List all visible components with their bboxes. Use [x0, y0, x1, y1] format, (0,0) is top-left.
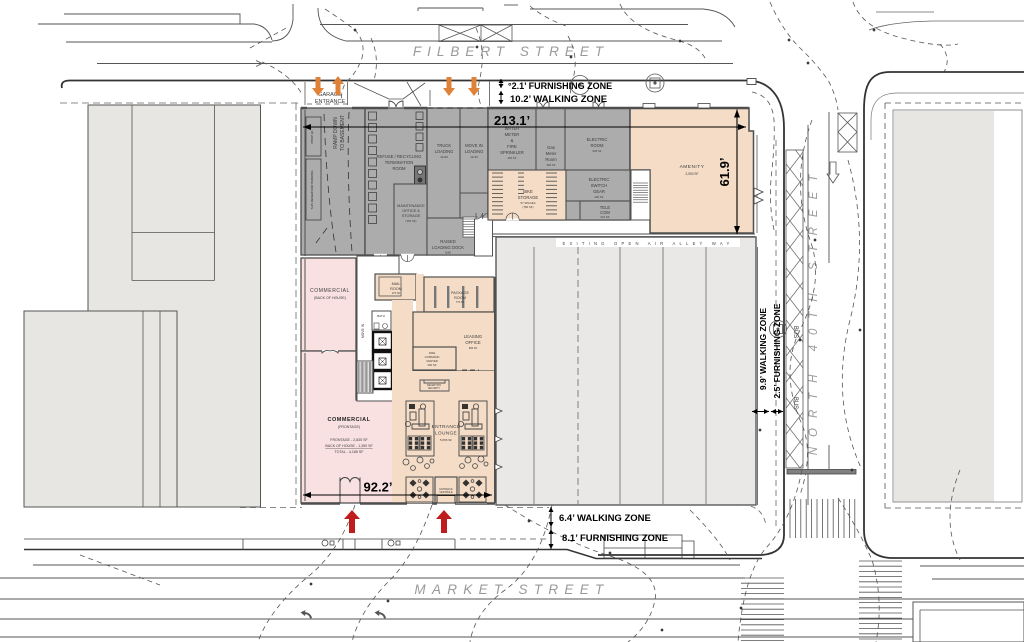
- svg-text:6.4’ WALKING ZONE: 6.4’ WALKING ZONE: [559, 513, 651, 524]
- svg-text:2,900 SF: 2,900 SF: [686, 172, 699, 176]
- svg-text:360 SF: 360 SF: [546, 163, 555, 167]
- svg-text:COMMERCIAL: COMMERCIAL: [310, 288, 350, 294]
- svg-text:OFFICE: OFFICE: [465, 340, 481, 345]
- svg-text:Meter: Meter: [546, 151, 557, 156]
- svg-text:BUS: BUS: [792, 397, 798, 409]
- svg-text:FRONTAGE - 2,835 SF: FRONTAGE - 2,835 SF: [330, 438, 368, 442]
- svg-text:12x40: 12x40: [470, 155, 478, 159]
- svg-text:770 SF: 770 SF: [456, 300, 465, 304]
- svg-text:RAISED: RAISED: [440, 239, 456, 244]
- svg-text:MAIL: MAIL: [392, 282, 401, 286]
- svg-text:FILBERT STREET: FILBERT STREET: [413, 44, 609, 59]
- svg-text:ENTRANCE: ENTRANCE: [315, 99, 346, 105]
- svg-text:(BACK OF HOUSE): (BACK OF HOUSE): [314, 296, 346, 300]
- svg-text:200 SF: 200 SF: [427, 363, 436, 367]
- svg-text:COMMERCIAL: COMMERCIAL: [328, 417, 371, 423]
- svg-text:MOVE IN: MOVE IN: [465, 143, 483, 148]
- svg-text:(300 SF): (300 SF): [406, 219, 417, 223]
- svg-text:BIKE: BIKE: [523, 189, 533, 194]
- svg-text:MAINTENANCE: MAINTENANCE: [397, 204, 425, 208]
- svg-text:ELECTRIC: ELECTRIC: [589, 177, 610, 182]
- svg-text:VESTIBULE: VESTIBULE: [439, 491, 453, 494]
- svg-text:AMENITY: AMENITY: [680, 164, 705, 170]
- svg-text:TERMINATION: TERMINATION: [385, 160, 414, 165]
- svg-text:92.2’: 92.2’: [364, 480, 393, 495]
- svg-text:ROOM: ROOM: [390, 287, 402, 291]
- svg-text:5,056 SF: 5,056 SF: [440, 438, 452, 442]
- svg-text:945 SF: 945 SF: [592, 149, 601, 153]
- svg-text:400 SF: 400 SF: [594, 195, 603, 199]
- svg-text:213.1’: 213.1’: [494, 113, 530, 128]
- svg-text:EXITING OPEN AIR ALLEY WAY: EXITING OPEN AIR ALLEY WAY: [562, 241, 733, 246]
- svg-text:LEASING: LEASING: [464, 334, 482, 339]
- svg-text:FIRE: FIRE: [507, 144, 517, 149]
- svg-text:9x60: 9x60: [445, 251, 452, 255]
- svg-text:10.2’ WALKING ZONE: 10.2’ WALKING ZONE: [510, 94, 607, 105]
- svg-text:RAMP DOWN: RAMP DOWN: [333, 117, 339, 149]
- svg-text:LOUNGE: LOUNGE: [435, 431, 457, 437]
- svg-text:ROOM: ROOM: [590, 143, 604, 148]
- svg-text:9.9’ WALKING ZONE: 9.9’ WALKING ZONE: [758, 308, 768, 391]
- svg-text:SWITCH: SWITCH: [591, 183, 608, 188]
- svg-text:680 SF: 680 SF: [469, 346, 478, 350]
- svg-text:(FRONTAGE): (FRONTAGE): [338, 425, 360, 429]
- svg-text:REFUSE / RECYCLING: REFUSE / RECYCLING: [377, 154, 422, 159]
- svg-text:PROP (2): PROP (2): [310, 131, 314, 144]
- svg-text:ELECTRIC: ELECTRIC: [587, 137, 608, 142]
- svg-text:METER: METER: [505, 132, 520, 137]
- svg-text:SECURITY: SECURITY: [428, 387, 440, 390]
- svg-text:ENTRANCE: ENTRANCE: [432, 424, 461, 430]
- svg-text:OFFICE &: OFFICE &: [402, 209, 420, 213]
- svg-text:Gas: Gas: [547, 145, 555, 150]
- svg-text:NORTH 40TH STREET: NORTH 40TH STREET: [808, 165, 820, 456]
- svg-text:370 SF: 370 SF: [392, 291, 401, 295]
- svg-text:STORAGE: STORAGE: [518, 195, 539, 200]
- svg-text:210 SF: 210 SF: [600, 215, 609, 219]
- svg-text:PACKAGE: PACKAGE: [451, 291, 470, 295]
- svg-text:450 SF: 450 SF: [507, 156, 516, 160]
- svg-text:LOADING DOCK: LOADING DOCK: [432, 245, 464, 250]
- svg-text:STORAGE: STORAGE: [402, 214, 421, 218]
- svg-text:°2.1’ FURNISHING ZONE: °2.1’ FURNISHING ZONE: [508, 81, 612, 91]
- svg-text:SPRINKLER: SPRINKLER: [500, 150, 524, 155]
- svg-text:ROOM: ROOM: [392, 166, 406, 171]
- svg-text:TOTAL - 4,185 SF: TOTAL - 4,185 SF: [335, 450, 365, 454]
- svg-text:TRUCK: TRUCK: [437, 143, 452, 148]
- svg-text:LOADING: LOADING: [465, 149, 484, 154]
- svg-text:Room: Room: [545, 157, 557, 162]
- svg-text:ROOM: ROOM: [454, 296, 466, 300]
- svg-text:&: &: [511, 138, 514, 143]
- svg-text:BACK OF HOUSE - 1,350 SF: BACK OF HOUSE - 1,350 SF: [325, 444, 373, 448]
- svg-text:GEAR: GEAR: [593, 189, 605, 194]
- svg-text:BUS: BUS: [792, 326, 798, 338]
- svg-text:2.5’ FURNISHING ZONE: 2.5’ FURNISHING ZONE: [772, 303, 782, 398]
- svg-text:LOADING: LOADING: [435, 149, 454, 154]
- svg-text:12x40: 12x40: [440, 155, 448, 159]
- svg-text:61.9’: 61.9’: [717, 158, 732, 187]
- svg-text:BATH: BATH: [377, 314, 385, 318]
- svg-text:MOVE IN: MOVE IN: [361, 323, 365, 338]
- svg-text:7x15 RESERVOIR PARKING: 7x15 RESERVOIR PARKING: [310, 170, 314, 210]
- svg-text:8.1’ FURNISHING ZONE: 8.1’ FURNISHING ZONE: [562, 533, 668, 544]
- svg-text:TO BASEMENT: TO BASEMENT: [340, 115, 346, 151]
- svg-text:(780 SF): (780 SF): [523, 205, 534, 209]
